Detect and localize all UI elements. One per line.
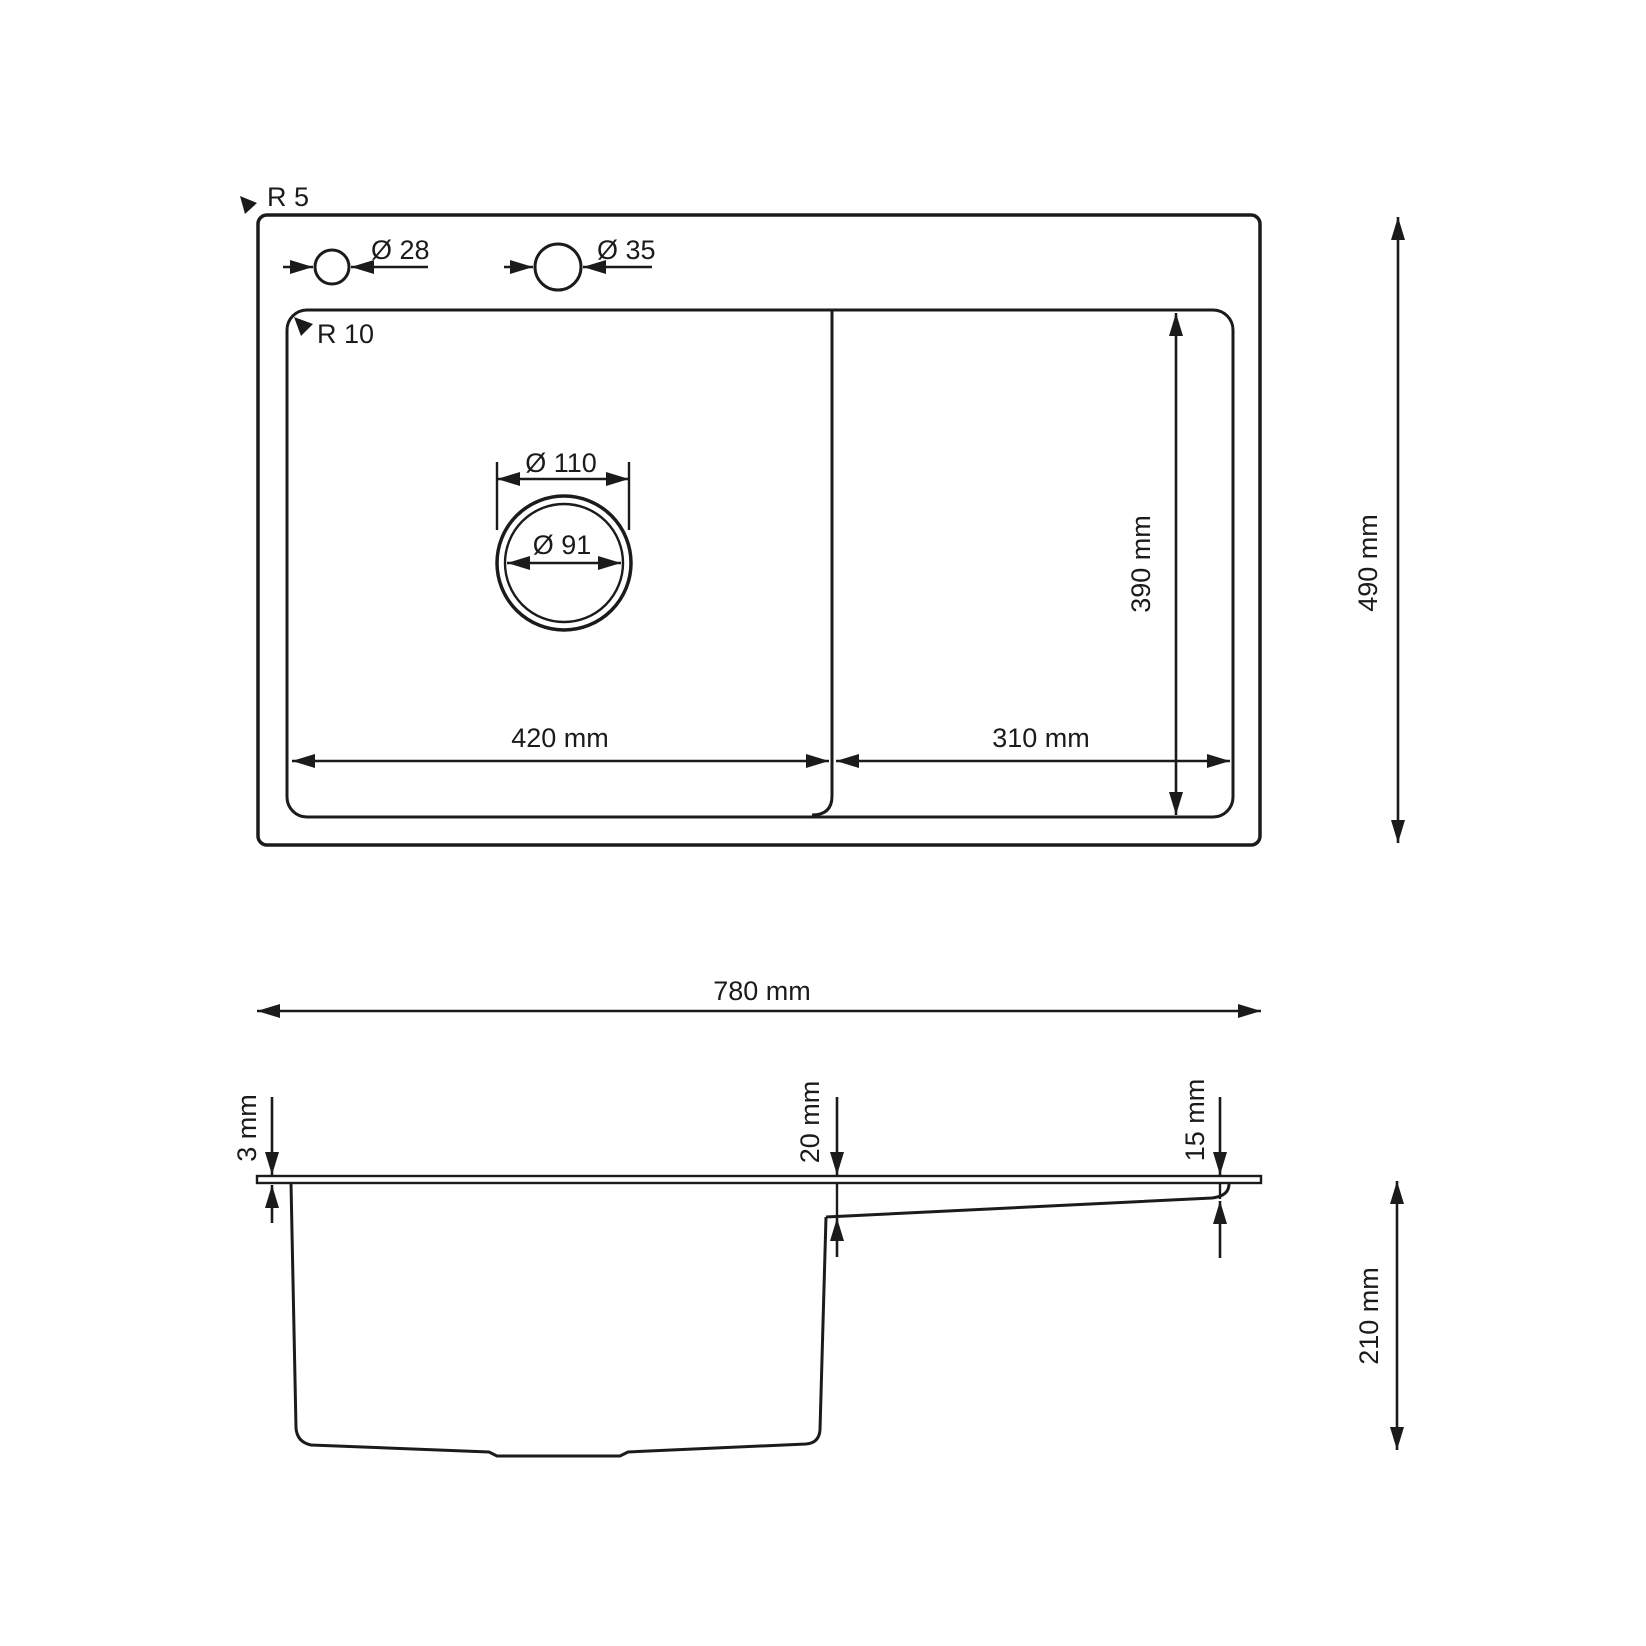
inner-radius-label: R 10 xyxy=(317,319,374,349)
bowl-drainboard-divider xyxy=(812,310,832,815)
drainboard-edge-label: 15 mm xyxy=(1180,1079,1210,1162)
sink-technical-drawing: R 5 R 10 Ø 28 Ø 35 Ø 110 Ø 91 420 mm 310… xyxy=(0,0,1646,1646)
outer-radius-label: R 5 xyxy=(267,182,309,212)
overall-depth-label: 490 mm xyxy=(1353,514,1383,612)
tap-hole-small xyxy=(315,250,349,284)
drain-flange-label: Ø 110 xyxy=(525,448,597,478)
bowl-height-label: 210 mm xyxy=(1354,1267,1384,1365)
outer-radius-leader-arrow-icon xyxy=(240,196,257,214)
tap-hole-small-label: Ø 28 xyxy=(371,235,430,265)
inner-radius-leader-arrow-icon xyxy=(294,317,313,336)
side-view: 780 mm 3 mm 20 mm 15 mm 210 mm xyxy=(232,976,1397,1456)
bowl-profile xyxy=(291,1183,826,1456)
sink-inner-outline xyxy=(287,310,1233,817)
top-view: R 5 R 10 Ø 28 Ø 35 Ø 110 Ø 91 420 mm 310… xyxy=(240,182,1398,845)
rim-profile xyxy=(257,1176,1261,1183)
overall-width-label: 780 mm xyxy=(713,976,811,1006)
drainboard-drop-label: 20 mm xyxy=(795,1081,825,1164)
bowl-width-label: 420 mm xyxy=(511,723,609,753)
tap-hole-large-label: Ø 35 xyxy=(597,235,656,265)
rim-thickness-label: 3 mm xyxy=(232,1094,262,1162)
drainboard-width-label: 310 mm xyxy=(992,723,1090,753)
drain-hole-label: Ø 91 xyxy=(533,530,592,560)
tap-hole-large xyxy=(535,244,581,290)
drainboard-profile xyxy=(826,1184,1229,1217)
bowl-depth-label: 390 mm xyxy=(1126,515,1156,613)
